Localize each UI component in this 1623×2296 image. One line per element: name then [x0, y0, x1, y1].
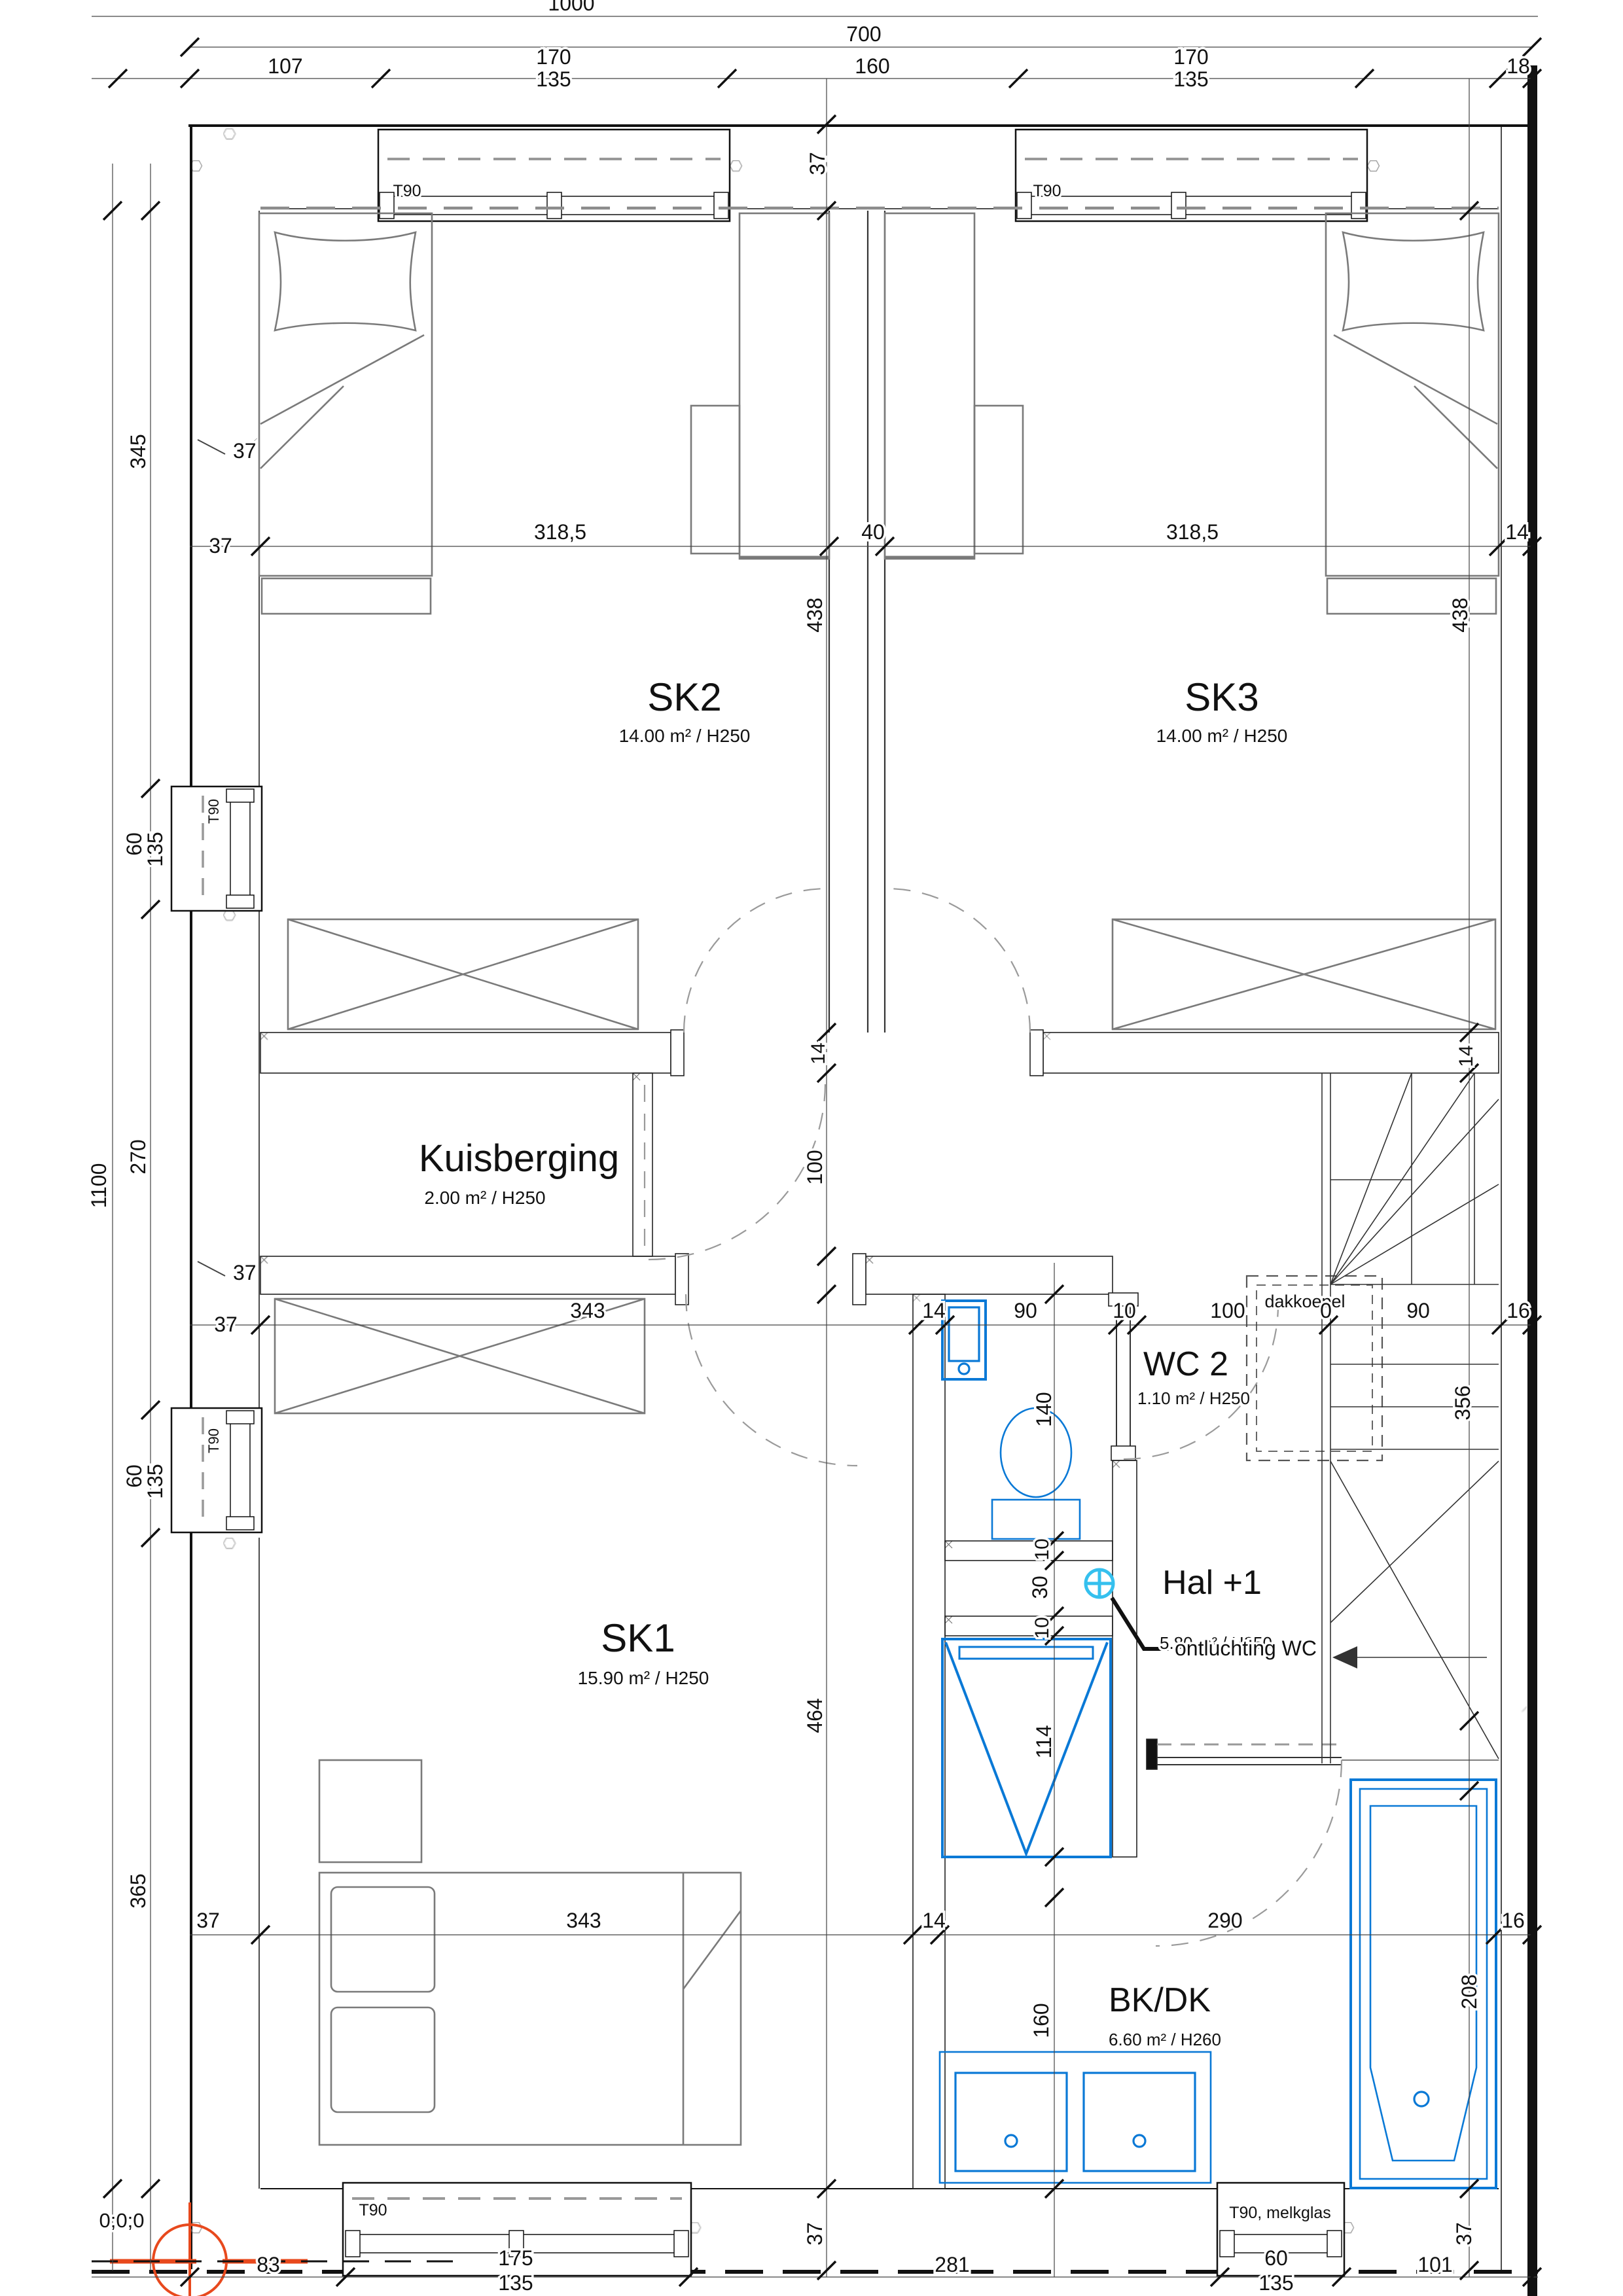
room-info-kuisberging: 2.00 m² / H250: [424, 1188, 545, 1208]
window-label-t90-bottom: T90: [359, 2201, 387, 2219]
dim-row2-0: 0: [1320, 1299, 1332, 1322]
dim-bot-175: 175: [498, 2246, 533, 2270]
bed-sk1: [319, 1760, 741, 2145]
door-swing-kuisberging: [649, 1083, 825, 1260]
windows: [171, 130, 1367, 2276]
dim-row1-37: 37: [209, 534, 232, 557]
room-label-kuisberging: Kuisberging: [419, 1137, 619, 1180]
wardrobe-sk3: [1113, 919, 1495, 1029]
dim-14-partition-right: 14: [1455, 1045, 1477, 1067]
dim-top-18: 18: [1507, 54, 1530, 78]
dim-row3-37: 37: [196, 1909, 220, 1932]
dim-top-37: 37: [806, 152, 829, 175]
dim-bot-60: 60: [1264, 2246, 1288, 2270]
window-label-t90-left-1: T90: [205, 799, 222, 824]
door-swing-sk3: [886, 889, 1030, 1033]
wall-niche-top: [945, 1541, 1113, 1561]
dim-top-160: 160: [855, 54, 889, 78]
wall-right-party: [1501, 65, 1537, 2296]
dim-140: 140: [1032, 1392, 1056, 1426]
dim-464: 464: [803, 1698, 827, 1733]
door-jamb: [671, 1030, 684, 1076]
dim-14-partition-left: 14: [808, 1042, 829, 1064]
dim-208: 208: [1457, 1974, 1481, 2009]
note-ontluchting: ontluchting WC: [1175, 1636, 1317, 1660]
dim-438-right: 438: [1448, 597, 1472, 632]
dim-left-60a: 60: [122, 832, 146, 856]
dim-10a: 10: [1031, 1538, 1053, 1560]
dim-left-135b: 135: [143, 1464, 167, 1498]
dim-10b: 10: [1031, 1617, 1053, 1638]
room-info-sk3: 14.00 m² / H250: [1156, 726, 1288, 746]
wall-kuisberging-right: [633, 1073, 652, 1256]
annotations: SK214.00 m² / H250SK314.00 m² / H250Kuis…: [87, 0, 1530, 2295]
dim-bot-281: 281: [935, 2253, 969, 2276]
wall-corridor-top-left: [260, 1033, 671, 1073]
chair-sk2: [691, 406, 740, 554]
room-label-sk1: SK1: [601, 1616, 675, 1660]
window-label-t90-melkglas: T90, melkglas: [1229, 2204, 1331, 2222]
wall-corridor-bottom-left: [260, 1256, 675, 1294]
dim-30: 30: [1028, 1576, 1052, 1599]
dim-bot-135a: 135: [498, 2271, 533, 2295]
dim-row3-14: 14: [922, 1909, 946, 1932]
note-dakkoepel: dakkoepel: [1264, 1292, 1345, 1311]
door-swing-bkdk: [1156, 1760, 1342, 1946]
dim-row1-40: 40: [861, 520, 885, 544]
door-jamb: [1030, 1030, 1043, 1076]
toilet-wc2: [992, 1408, 1080, 1539]
desk-sk3: [885, 213, 1023, 559]
wall-shaft-right: [1113, 1460, 1137, 1857]
party-wall-boundary-line: [1527, 65, 1537, 2296]
dim-438-left: 438: [803, 597, 827, 632]
dim-row2-343: 343: [570, 1299, 605, 1322]
wall-niche-bottom: [945, 1616, 1113, 1636]
dim-160: 160: [1029, 2003, 1053, 2038]
dim-row2-90b: 90: [1406, 1299, 1430, 1322]
floorplan-canvas: SK214.00 m² / H250SK314.00 m² / H250Kuis…: [0, 0, 1623, 2296]
wardrobe-sk2: [288, 919, 638, 1029]
dim-row1-3185a: 318,5: [534, 520, 586, 544]
dim-row2-16: 16: [1507, 1299, 1530, 1322]
dim-wall37-leader-b: 37: [233, 1261, 257, 1284]
window-left-2: [171, 1408, 262, 1532]
dim-bot-101: 101: [1418, 2253, 1452, 2276]
dim-left-1100: 1100: [87, 1163, 111, 1209]
room-info-wc2: 1.10 m² / H250: [1137, 1388, 1250, 1408]
bed-sk2: [259, 213, 432, 614]
dim-row3-343: 343: [566, 1909, 601, 1932]
floorplan-drawing: SK214.00 m² / H250SK314.00 m² / H250Kuis…: [0, 0, 1623, 2296]
dim-left-270: 270: [126, 1139, 150, 1174]
appliance-space: [942, 1639, 1111, 1857]
dim-top-170a: 170: [536, 45, 571, 69]
dim-row1-14: 14: [1505, 520, 1529, 544]
room-label-wc2: WC 2: [1143, 1345, 1228, 1383]
room-label-bkdk: BK/DK: [1109, 1981, 1211, 2019]
dim-row2-90a: 90: [1014, 1299, 1037, 1322]
door-swing-sk1: [686, 1294, 857, 1466]
dim-row2-14: 14: [922, 1299, 946, 1322]
bed-sk3: [1326, 213, 1499, 614]
dim-wall37-leader-a: 37: [233, 439, 257, 463]
dim-row2-100: 100: [1210, 1299, 1245, 1322]
dim-row3-16: 16: [1501, 1909, 1525, 1932]
origin-label: 0;0;0: [99, 2209, 145, 2232]
dim-top-135b: 135: [1173, 67, 1208, 91]
window-label-t90-top-right: T90: [1033, 182, 1061, 200]
chair-sk3: [974, 406, 1023, 554]
room-info-sk2: 14.00 m² / H250: [619, 726, 751, 746]
wall-corridor-top-right: [1043, 1033, 1499, 1073]
dim-left-135a: 135: [143, 832, 167, 866]
dim-114: 114: [1032, 1725, 1056, 1758]
nightstand-sk1: [319, 1760, 421, 1862]
door-post-bkdk: [1147, 1739, 1157, 1769]
door-jamb: [853, 1254, 866, 1305]
dim-top-135a: 135: [536, 67, 571, 91]
dim-bot-83: 83: [257, 2253, 280, 2276]
dim-356: 356: [1451, 1385, 1474, 1420]
room-info-sk1: 15.90 m² / H250: [578, 1668, 709, 1688]
room-info-bkdk: 6.60 m² / H260: [1109, 2030, 1221, 2049]
desk-sk2: [691, 213, 829, 559]
window-label-t90-left-2: T90: [205, 1428, 222, 1453]
dim-left-365: 365: [126, 1873, 150, 1908]
dim-bot-135b: 135: [1258, 2271, 1293, 2295]
stair-direction-arrow: [1332, 1646, 1357, 1669]
room-label-hal: Hal +1: [1162, 1564, 1262, 1602]
wall-corridor-bottom-right: [866, 1256, 1113, 1294]
wall-partition-sk2-sk3: [829, 211, 885, 1033]
dim-left-60b: 60: [122, 1464, 146, 1488]
dim-100-door: 100: [803, 1150, 827, 1184]
dim-left-345: 345: [126, 434, 150, 468]
dim-row3-290: 290: [1207, 1909, 1242, 1932]
dim-top-1000: 1000: [548, 0, 594, 15]
dim-row2-37: 37: [214, 1313, 238, 1336]
dim-row1-3185b: 318,5: [1166, 520, 1219, 544]
window-label-t90-top-left: T90: [393, 182, 421, 200]
door-swing-sk2: [684, 889, 828, 1033]
dim-top-107: 107: [268, 54, 302, 78]
dim-37-bottom-right: 37: [1452, 2222, 1476, 2246]
room-label-sk3: SK3: [1185, 675, 1258, 719]
dim-row2-10: 10: [1113, 1299, 1136, 1322]
double-washbasin: [940, 2052, 1211, 2183]
room-label-sk2: SK2: [647, 675, 721, 719]
dim-top-700: 700: [846, 22, 881, 46]
dim-top-170b: 170: [1173, 45, 1208, 69]
washbasin-wc2: [942, 1301, 986, 1379]
dim-37-bottom-left: 37: [803, 2222, 827, 2246]
